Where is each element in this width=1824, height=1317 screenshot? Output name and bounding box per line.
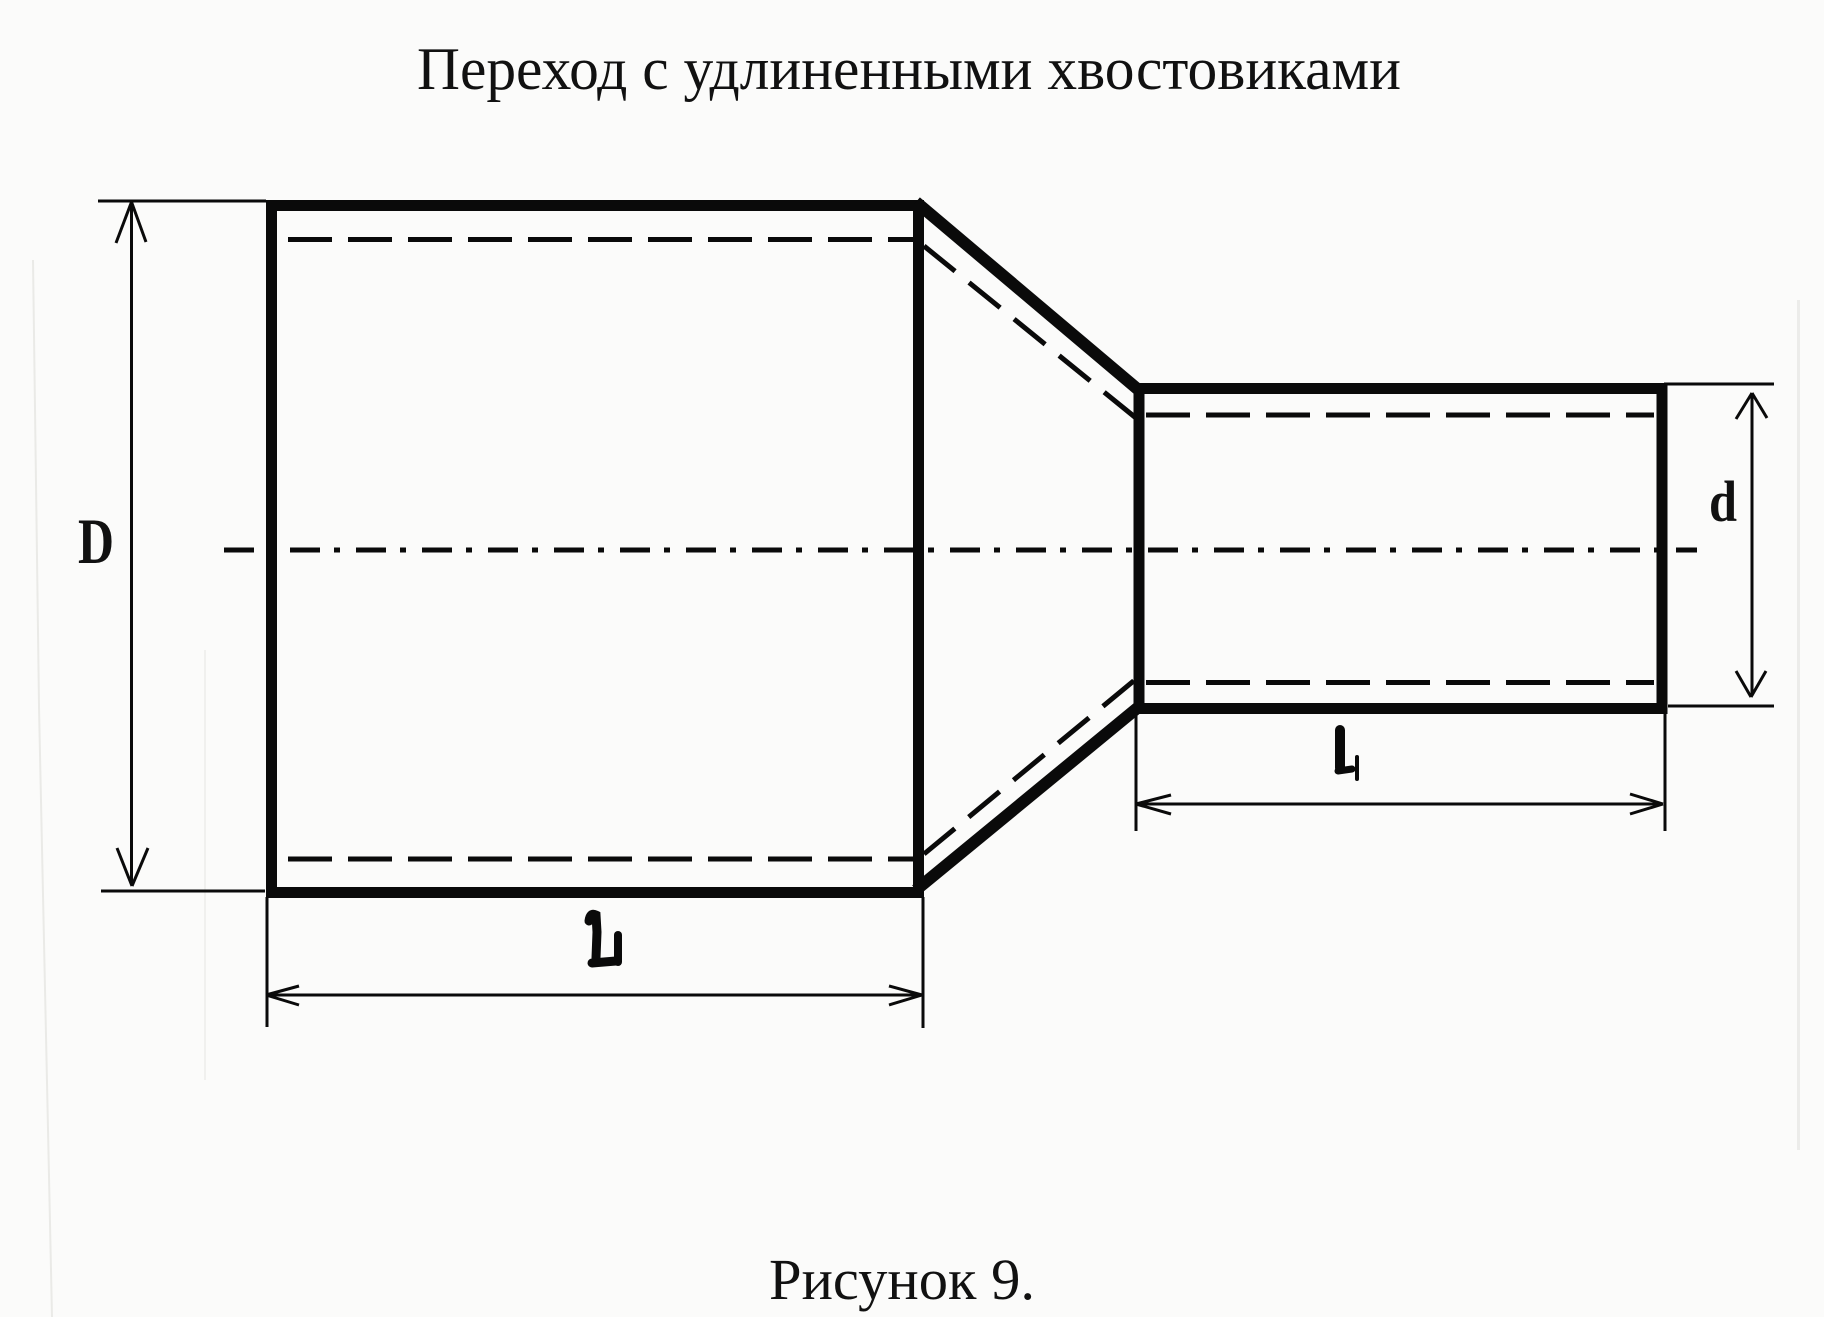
- svg-text:Переход с удлиненными хвостови: Переход с удлиненными хвостовиками: [417, 36, 1401, 102]
- svg-text:Рисунок 9.: Рисунок 9.: [769, 1247, 1035, 1312]
- svg-text:d: d: [1709, 469, 1737, 534]
- svg-text:D: D: [78, 506, 114, 578]
